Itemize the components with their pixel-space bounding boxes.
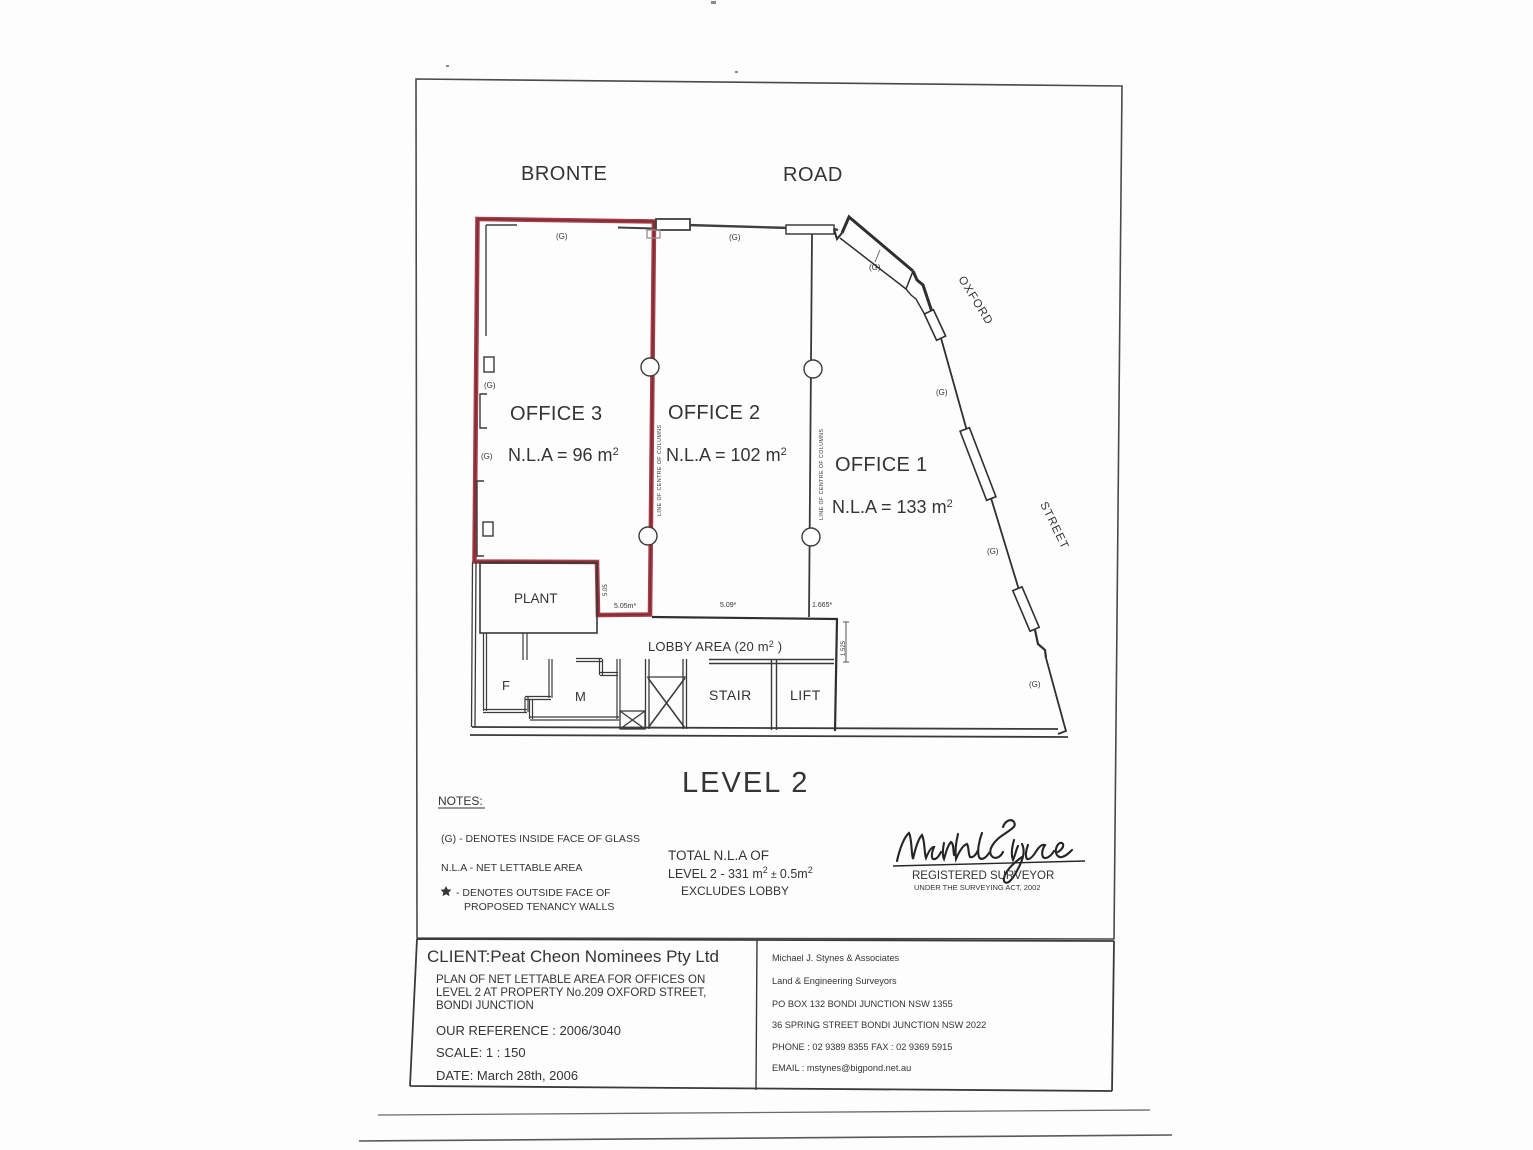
svg-text:OFFICE 1: OFFICE 1 bbox=[835, 454, 927, 476]
svg-text:BRONTE: BRONTE bbox=[521, 163, 607, 185]
svg-text:REGISTERED SURVEYOR: REGISTERED SURVEYOR bbox=[912, 870, 1054, 882]
svg-text:LEVEL 2 - 331 m2 ± 0.5m2: LEVEL 2 - 331 m2 ± 0.5m2 bbox=[668, 865, 813, 881]
svg-text:(G): (G) bbox=[936, 388, 948, 397]
svg-text:PLANT: PLANT bbox=[514, 591, 558, 606]
svg-text:(G) - DENOTES INSIDE FACE OF G: (G) - DENOTES INSIDE FACE OF GLASS bbox=[441, 833, 640, 845]
svg-text:LEVEL 2: LEVEL 2 bbox=[682, 767, 809, 799]
svg-text:(G): (G) bbox=[481, 452, 493, 461]
svg-text:TOTAL N.L.A OF: TOTAL N.L.A OF bbox=[668, 848, 769, 863]
svg-text:BONDI JUNCTION: BONDI JUNCTION bbox=[436, 1000, 534, 1012]
svg-text:5.09*: 5.09* bbox=[720, 602, 737, 609]
svg-text:PO BOX 132 BONDI JUNCTION NSW: PO BOX 132 BONDI JUNCTION NSW 1355 bbox=[772, 999, 953, 1009]
svg-text:5.05: 5.05 bbox=[603, 584, 609, 596]
svg-text:N.L.A = 133 m2: N.L.A = 133 m2 bbox=[832, 497, 953, 517]
svg-text:STAIR: STAIR bbox=[709, 687, 752, 703]
svg-text:(G): (G) bbox=[484, 381, 496, 390]
svg-text:Land & Engineering Surveyors: Land & Engineering Surveyors bbox=[772, 976, 897, 986]
svg-text:LEVEL 2 AT PROPERTY No.209 OXF: LEVEL 2 AT PROPERTY No.209 OXFORD STREET… bbox=[436, 987, 706, 999]
svg-text:OFFICE 3: OFFICE 3 bbox=[510, 403, 602, 425]
svg-text:5.05m*: 5.05m* bbox=[614, 603, 636, 610]
svg-text:OUR REFERENCE : 2006/3040: OUR REFERENCE : 2006/3040 bbox=[436, 1023, 621, 1038]
svg-text:CLIENT:Peat Cheon Nominees Pty: CLIENT:Peat Cheon Nominees Pty Ltd bbox=[427, 947, 719, 966]
svg-text:OFFICE 2: OFFICE 2 bbox=[668, 402, 760, 424]
svg-text:NOTES:: NOTES: bbox=[438, 794, 483, 808]
svg-text:(G): (G) bbox=[729, 233, 741, 242]
svg-text:PHONE : 02 9389 8355 FAX: PHONE : 02 9389 8355 FAX : 02 9369 5915 bbox=[772, 1042, 952, 1052]
svg-text:LIFT: LIFT bbox=[790, 687, 821, 703]
svg-text:(G): (G) bbox=[556, 232, 568, 241]
svg-text:1.665*: 1.665* bbox=[812, 602, 833, 609]
svg-text:PLAN OF NET LETTABLE AREA FOR: PLAN OF NET LETTABLE AREA FOR OFFICES ON bbox=[436, 974, 705, 986]
svg-text:M: M bbox=[575, 689, 586, 704]
svg-text:1.525: 1.525 bbox=[841, 640, 847, 656]
svg-text:(G): (G) bbox=[987, 547, 999, 556]
svg-text:UNDER THE SURVEYING ACT, 2002: UNDER THE SURVEYING ACT, 2002 bbox=[914, 883, 1040, 892]
svg-text:(G): (G) bbox=[1029, 680, 1041, 689]
svg-text:N.L.A - NET LETTABLE AREA: N.L.A - NET LETTABLE AREA bbox=[441, 862, 582, 874]
svg-text:DATE: March 28th, 2006: DATE: March 28th, 2006 bbox=[436, 1068, 578, 1083]
svg-text:F: F bbox=[502, 678, 510, 693]
svg-text:- DENOTES OUTSIDE FACE OF: - DENOTES OUTSIDE FACE OF bbox=[456, 887, 611, 899]
svg-text:EMAIL : mstynes@bigpond.net.: EMAIL : mstynes@bigpond.net.au bbox=[772, 1063, 911, 1073]
svg-text:ROAD: ROAD bbox=[783, 164, 843, 186]
svg-text:EXCLUDES LOBBY: EXCLUDES LOBBY bbox=[681, 884, 789, 898]
svg-text:(G): (G) bbox=[869, 263, 881, 272]
svg-text:PROPOSED TENANCY WALLS: PROPOSED TENANCY WALLS bbox=[464, 901, 614, 913]
svg-text:LINE OF CENTRE OF COLUMNS: LINE OF CENTRE OF COLUMNS bbox=[819, 428, 825, 520]
svg-text:LINE OF CENTRE OF COLUMNS: LINE OF CENTRE OF COLUMNS bbox=[657, 424, 663, 516]
svg-text:N.L.A = 96 m2: N.L.A = 96 m2 bbox=[508, 445, 619, 465]
svg-text:SCALE: 1 : 150: SCALE: 1 : 150 bbox=[436, 1045, 526, 1060]
svg-text:LOBBY AREA (20 m2 ): LOBBY AREA (20 m2 ) bbox=[648, 639, 782, 654]
svg-text:N.L.A = 102 m2: N.L.A = 102 m2 bbox=[666, 445, 787, 465]
svg-text:36 SPRING STREET BONDI JUNCTIO: 36 SPRING STREET BONDI JUNCTION NSW 2022 bbox=[772, 1020, 986, 1030]
svg-text:Michael J. Stynes & Associates: Michael J. Stynes & Associates bbox=[772, 953, 900, 963]
